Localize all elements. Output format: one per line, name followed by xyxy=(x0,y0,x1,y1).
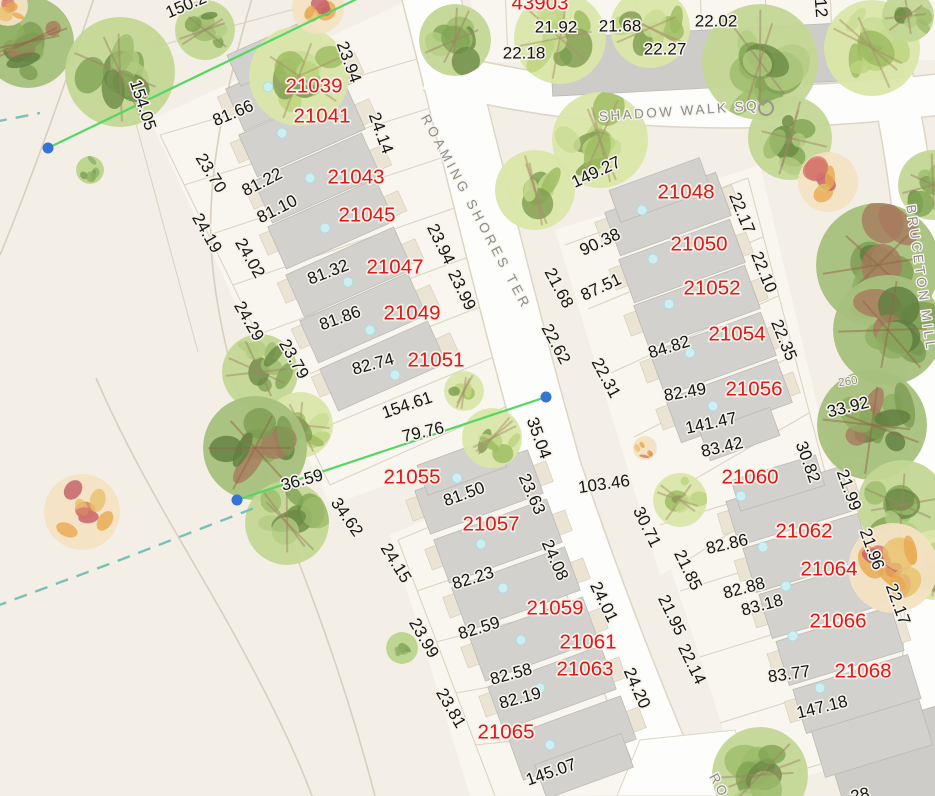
address-point xyxy=(365,325,375,335)
tree xyxy=(444,371,484,411)
address-point xyxy=(277,128,287,138)
parcel-number-label: 21065 xyxy=(477,721,534,744)
dimension-label: 21.92 xyxy=(535,18,578,37)
dimension-label: 12 xyxy=(811,0,832,18)
address-point xyxy=(476,539,486,549)
parcel-number-label: 21049 xyxy=(383,302,440,325)
parcel-number-label: 21060 xyxy=(721,466,778,489)
parcel-number-label: 21045 xyxy=(338,204,395,227)
address-point xyxy=(736,491,746,501)
address-point xyxy=(263,82,273,92)
parcel-number-label: 21064 xyxy=(800,558,857,581)
parcel-number-label: 21052 xyxy=(683,277,740,300)
parcel-number-label: 21066 xyxy=(809,610,866,633)
map-canvas[interactable]: 150.2154.0523.9424.1481.6623.7081.2281.1… xyxy=(0,0,935,796)
address-point xyxy=(343,277,353,287)
parcel-number-label: 21055 xyxy=(383,466,440,489)
address-point xyxy=(498,583,508,593)
dimension-label: 22.02 xyxy=(695,12,738,31)
parcel-number-label: 21062 xyxy=(775,520,832,543)
dimension-label: 21.68 xyxy=(599,17,642,36)
parcel-number-label: 21059 xyxy=(526,597,583,620)
parcel-number-label: 21043 xyxy=(327,166,384,189)
address-point xyxy=(648,254,658,264)
parcel-number-label: 21057 xyxy=(462,513,519,536)
dimension-label: 22.27 xyxy=(644,40,687,59)
parcel-number-label: 21039 xyxy=(285,75,342,98)
address-point xyxy=(305,173,315,183)
tree xyxy=(798,152,858,212)
parcel-number-label: 21051 xyxy=(407,349,464,372)
address-point xyxy=(781,581,791,591)
address-point xyxy=(320,223,330,233)
survey-point xyxy=(232,495,243,506)
parcel-number-label: 21050 xyxy=(670,233,727,256)
address-point xyxy=(516,635,526,645)
tree xyxy=(633,436,657,460)
address-point xyxy=(390,370,400,380)
address-point xyxy=(708,401,718,411)
address-point xyxy=(815,683,825,693)
survey-point xyxy=(541,392,552,403)
parcel-number-label: 21041 xyxy=(293,105,350,128)
address-point xyxy=(758,542,768,552)
address-point xyxy=(452,473,462,483)
survey-point xyxy=(43,143,54,154)
parcel-number-label: 21061 xyxy=(559,631,616,654)
parcel-number-label: 21047 xyxy=(366,256,423,279)
address-point xyxy=(664,299,674,309)
parcel-number-label: 21054 xyxy=(708,323,765,346)
address-point xyxy=(637,205,647,215)
parcel-number-label: 21063 xyxy=(556,658,613,681)
dimension-label: 22.18 xyxy=(503,44,546,63)
tree xyxy=(44,474,120,550)
parcel-number-label: 43903 xyxy=(511,0,568,15)
parcel-number-label: 21056 xyxy=(725,378,782,401)
address-point xyxy=(545,740,555,750)
tree xyxy=(65,17,175,127)
parcel-number-label: 21068 xyxy=(834,660,891,683)
map-viewport[interactable]: 150.2154.0523.9424.1481.6623.7081.2281.1… xyxy=(0,0,935,796)
parcel-number-label: 21048 xyxy=(657,181,714,204)
address-point xyxy=(788,631,798,641)
